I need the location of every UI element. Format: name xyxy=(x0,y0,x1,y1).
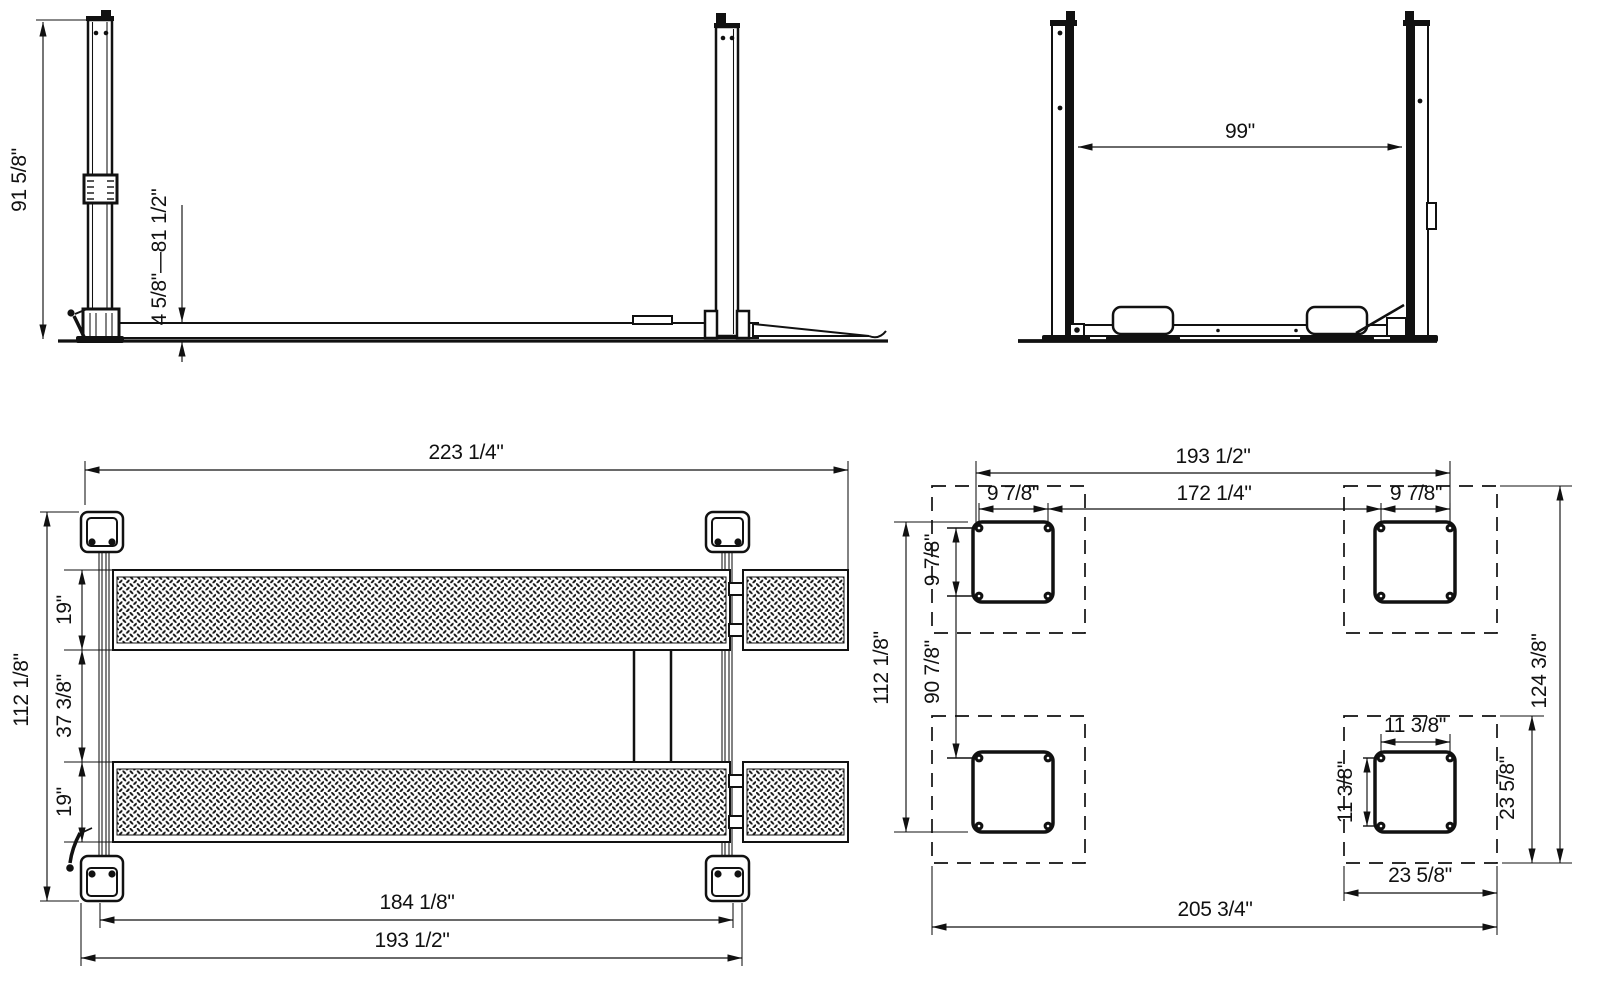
base-inner-bolt-span-label: 172 1/4" xyxy=(1176,482,1251,505)
plan-runway-width-front-label: 19" xyxy=(53,595,76,625)
plan-post-span-label: 193 1/2" xyxy=(374,929,449,952)
plan-overall-length-label: 223 1/4" xyxy=(428,441,503,464)
front-right-runway-foot xyxy=(1300,335,1374,342)
base-outer-span-label: 205 3/4" xyxy=(1177,898,1252,921)
front-view: 99" xyxy=(1018,11,1438,342)
base-bolt-width-left-label: 9 7/8" xyxy=(987,482,1039,505)
front-dim-between-posts: 99" xyxy=(1078,120,1402,147)
base-dim-bolt-width-right: 9 7/8" xyxy=(1381,482,1450,526)
front-left-runway-foot xyxy=(1106,335,1180,342)
side-right-post-cap xyxy=(714,23,740,28)
side-lift-range-label: 4 5/8"—81 1/2" xyxy=(148,189,171,326)
plan-front-ramp xyxy=(743,570,848,650)
lift-technical-drawing: 91 5/8" 4 5/8"—81 1/2" xyxy=(0,0,1600,1000)
side-runway-deck xyxy=(112,323,758,338)
side-left-carriage xyxy=(83,309,119,338)
base-dim-bolt-height-2: 11 3/8" xyxy=(1334,758,1379,826)
plan-runway-seams xyxy=(729,583,744,828)
plan-dim-runway-widths: 19" 37 3/8" 19" xyxy=(53,570,112,842)
base-post-span-label: 193 1/2" xyxy=(1175,445,1250,468)
base-dim-bolt-row-span: 90 7/8" xyxy=(921,596,975,758)
base-dim-pad-height: 23 5/8" xyxy=(1496,716,1544,863)
plan-between-runways-label: 37 3/8" xyxy=(53,674,76,738)
plan-view: 223 1/4" 19" 37 3/8" 19" 112 1/8" 184 1/… xyxy=(10,441,848,966)
side-jack-tray xyxy=(633,316,672,324)
plan-post-rear-right xyxy=(706,856,749,901)
plan-post-front-right xyxy=(706,512,749,552)
plan-front-runway xyxy=(113,570,730,650)
plan-runway-span-label: 184 1/8" xyxy=(379,891,454,914)
side-left-post xyxy=(67,10,124,343)
plan-runway-width-rear-label: 19" xyxy=(53,787,76,817)
base-plate-view: 193 1/2" 172 1/4" 9 7/8" 9 7/8" 9 7/8" xyxy=(870,445,1572,935)
base-dim-bolt-width-left: 9 7/8" xyxy=(979,482,1048,526)
plan-overall-width-label: 112 1/8" xyxy=(10,653,33,727)
side-approach-ramp xyxy=(753,324,886,337)
base-dim-overall-width: 112 1/8" xyxy=(870,522,968,832)
side-dim-overall-height: 91 5/8" xyxy=(8,20,86,339)
base-bolt-width-2-label: 11 3/8" xyxy=(1384,714,1446,737)
base-bolt-row-span-label: 90 7/8" xyxy=(921,640,944,704)
base-plate-rear-left xyxy=(973,752,1053,832)
front-left-post xyxy=(1042,11,1090,342)
side-view: 91 5/8" 4 5/8"—81 1/2" xyxy=(8,10,888,362)
base-plate-rear-right xyxy=(1375,752,1455,832)
base-overall-height-label: 124 3/8" xyxy=(1528,633,1551,708)
base-dim-bolt-width-2: 11 3/8" xyxy=(1381,714,1450,755)
drawing-canvas: 91 5/8" 4 5/8"—81 1/2" xyxy=(0,0,1600,1000)
base-plate-front-right xyxy=(1375,522,1455,602)
base-pad-height-label: 23 5/8" xyxy=(1496,756,1519,820)
base-dim-bolt-height: 9 7/8" xyxy=(921,528,975,596)
side-overall-height-label: 91 5/8" xyxy=(8,148,31,212)
base-pad-width-label: 23 5/8" xyxy=(1388,864,1452,887)
side-right-post xyxy=(705,13,749,338)
base-bolt-width-right-label: 9 7/8" xyxy=(1390,482,1442,505)
plan-rear-runway xyxy=(113,762,730,842)
front-between-posts-label: 99" xyxy=(1225,120,1255,143)
base-plate-front-left xyxy=(973,522,1053,602)
plan-post-front-left xyxy=(81,512,123,552)
front-left-runway-section xyxy=(1113,307,1173,334)
plan-rear-ramp xyxy=(743,762,848,842)
base-dim-pad-width: 23 5/8" xyxy=(1344,864,1497,935)
front-right-post xyxy=(1356,11,1438,342)
plan-dim-runway-span: 184 1/8" xyxy=(100,891,733,928)
base-bolt-height-2-label: 11 3/8" xyxy=(1334,761,1357,823)
base-overall-width-label: 112 1/8" xyxy=(870,631,893,705)
base-dim-inner-bolt-span: 172 1/4" xyxy=(1048,482,1381,526)
base-bolt-height-label: 9 7/8" xyxy=(921,534,944,586)
front-right-runway-section xyxy=(1307,307,1367,334)
front-power-unit-bracket xyxy=(1427,203,1436,229)
